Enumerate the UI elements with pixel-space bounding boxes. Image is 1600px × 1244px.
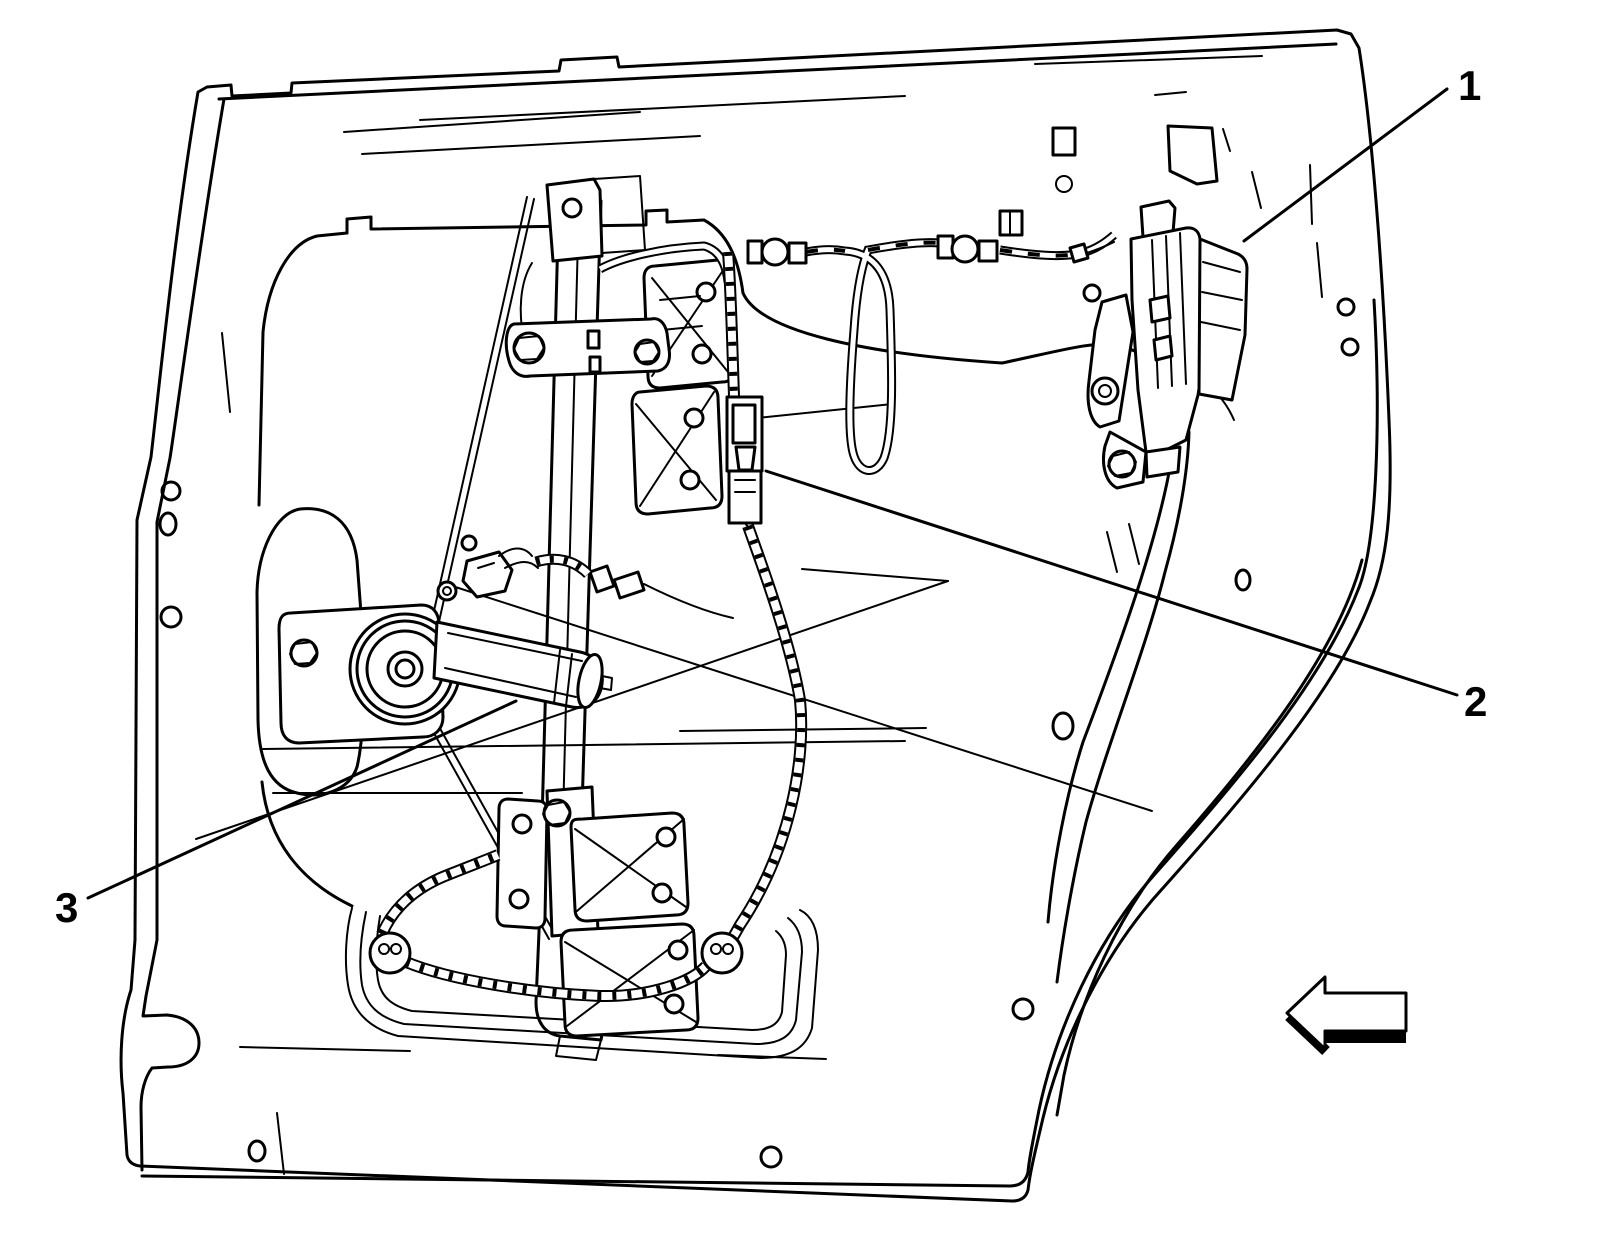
callout-2-label: 2: [1464, 678, 1487, 725]
harness-connector: [727, 397, 762, 527]
direction-arrow-icon: [1287, 977, 1406, 1051]
window-motor: [279, 536, 733, 743]
callout-3-label: 3: [55, 884, 78, 931]
wiring-harness: [370, 235, 1114, 996]
callout-2: 2: [766, 471, 1487, 725]
diagram-canvas: 1 2 3: [0, 0, 1600, 1244]
callout-1-leader-line: [1244, 89, 1447, 241]
door-components-diagram: 1 2 3: [0, 0, 1600, 1244]
callout-1-label: 1: [1458, 62, 1481, 109]
callout-1: 1: [1244, 62, 1481, 241]
upper-guide-brackets: [506, 260, 734, 514]
